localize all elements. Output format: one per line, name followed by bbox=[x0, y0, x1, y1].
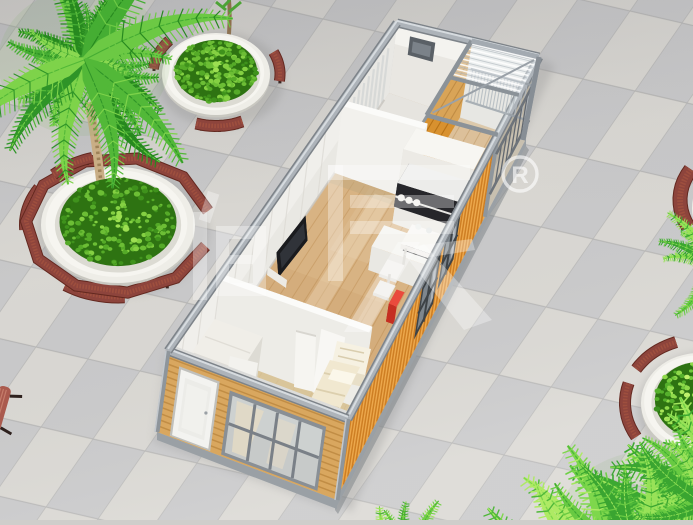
svg-text:R: R bbox=[511, 162, 528, 189]
